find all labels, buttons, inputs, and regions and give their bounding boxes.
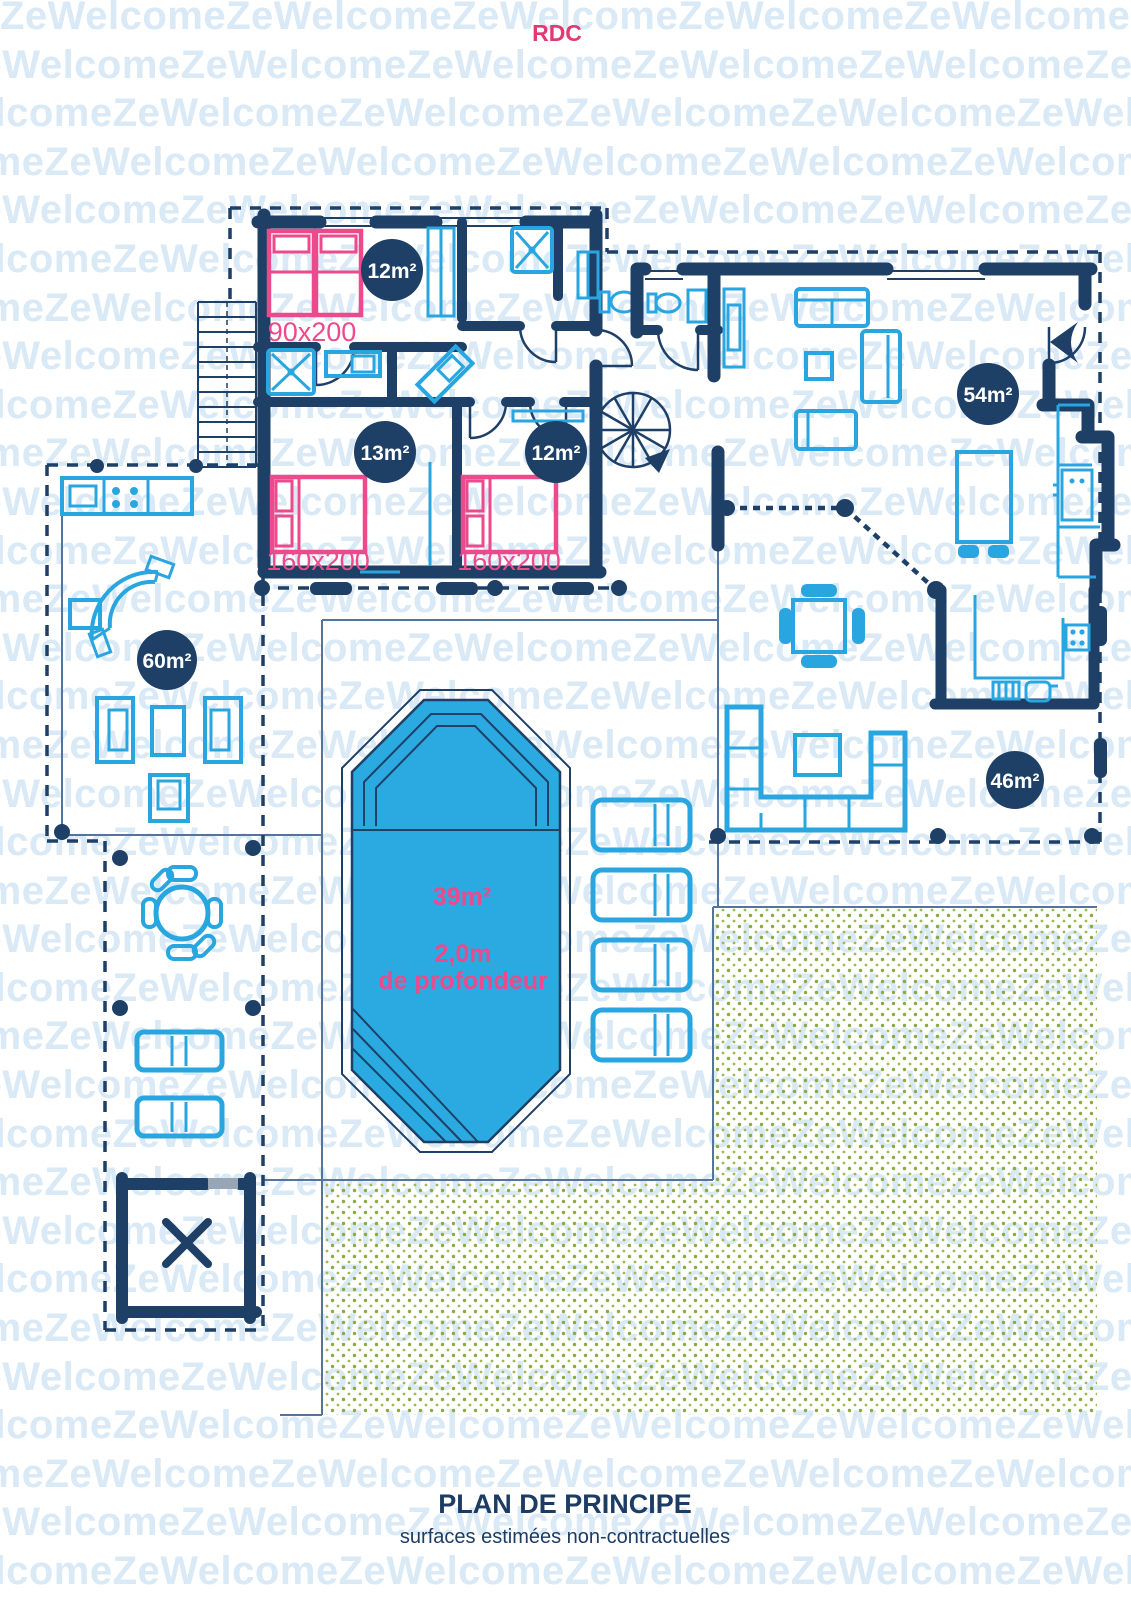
area-badge-label: 12m² — [531, 442, 580, 465]
technical-room — [122, 1178, 256, 1318]
single-beds — [269, 231, 361, 315]
terrace-dining-set — [779, 584, 865, 668]
lounge-sofa-icon — [727, 707, 905, 830]
pool-depth-value: 2,0m — [435, 940, 492, 968]
round-dining-set — [143, 867, 221, 959]
bed-size-label: 90x200 — [268, 317, 357, 347]
shower-icon — [512, 228, 552, 272]
wardrobe-icon — [513, 411, 583, 421]
floor-title: RDC — [532, 20, 582, 46]
footer-subtitle: surfaces estimées non-contractuelles — [400, 1526, 730, 1548]
terrace-kitchen — [935, 590, 1094, 704]
armchair-icon — [862, 331, 900, 402]
cross-icon — [166, 1222, 208, 1264]
floor-plan-page: ZeWelcomeZeWelcomeZeWelcomeZeWelcomeZeWe… — [0, 0, 1131, 1600]
tv-unit-icon — [724, 289, 744, 367]
area-badge-label: 54m² — [963, 384, 1012, 407]
double-bed-2 — [463, 477, 556, 552]
swimming-pool: 39m² 2,0m de profondeur — [342, 690, 570, 1152]
sink-vanity-icon — [326, 352, 380, 376]
dining-table-icon — [957, 452, 1011, 558]
summer-kitchen-icon — [62, 478, 192, 514]
footer-title: PLAN DE PRINCIPE — [438, 1489, 692, 1519]
bed-size-label: 160x200 — [457, 546, 561, 576]
pool-depth-caption: de profondeur — [378, 967, 548, 995]
pool-area-label: 39m² — [433, 883, 491, 911]
area-badge-label: 46m² — [990, 770, 1039, 793]
chaise-icon — [796, 411, 856, 449]
entrance-arrow-icon — [1050, 322, 1078, 363]
area-badge-label: 12m² — [367, 260, 416, 283]
terrace-loungers — [137, 1032, 222, 1136]
area-badge-label: 60m² — [142, 650, 191, 673]
area-badge-label: 13m² — [360, 442, 409, 465]
floor-plan-drawing: 39m² 2,0m de profondeur — [0, 0, 1131, 1600]
pool-loungers — [593, 800, 690, 1060]
living-block-walls — [637, 269, 1114, 590]
shower-icon — [268, 350, 314, 394]
double-bed-1 — [272, 477, 365, 552]
exterior-stairs-icon — [198, 302, 256, 467]
door-mark — [208, 1178, 238, 1189]
coffee-table-icon — [806, 353, 832, 379]
spiral-staircase-icon — [596, 393, 670, 473]
bed-size-label: 160x200 — [266, 546, 370, 576]
wardrobe-icon — [428, 228, 454, 316]
sofa-icon — [796, 289, 868, 326]
armchair-set — [97, 698, 241, 821]
corner-vanity-icon — [417, 346, 472, 401]
toilet-icon — [648, 290, 706, 322]
